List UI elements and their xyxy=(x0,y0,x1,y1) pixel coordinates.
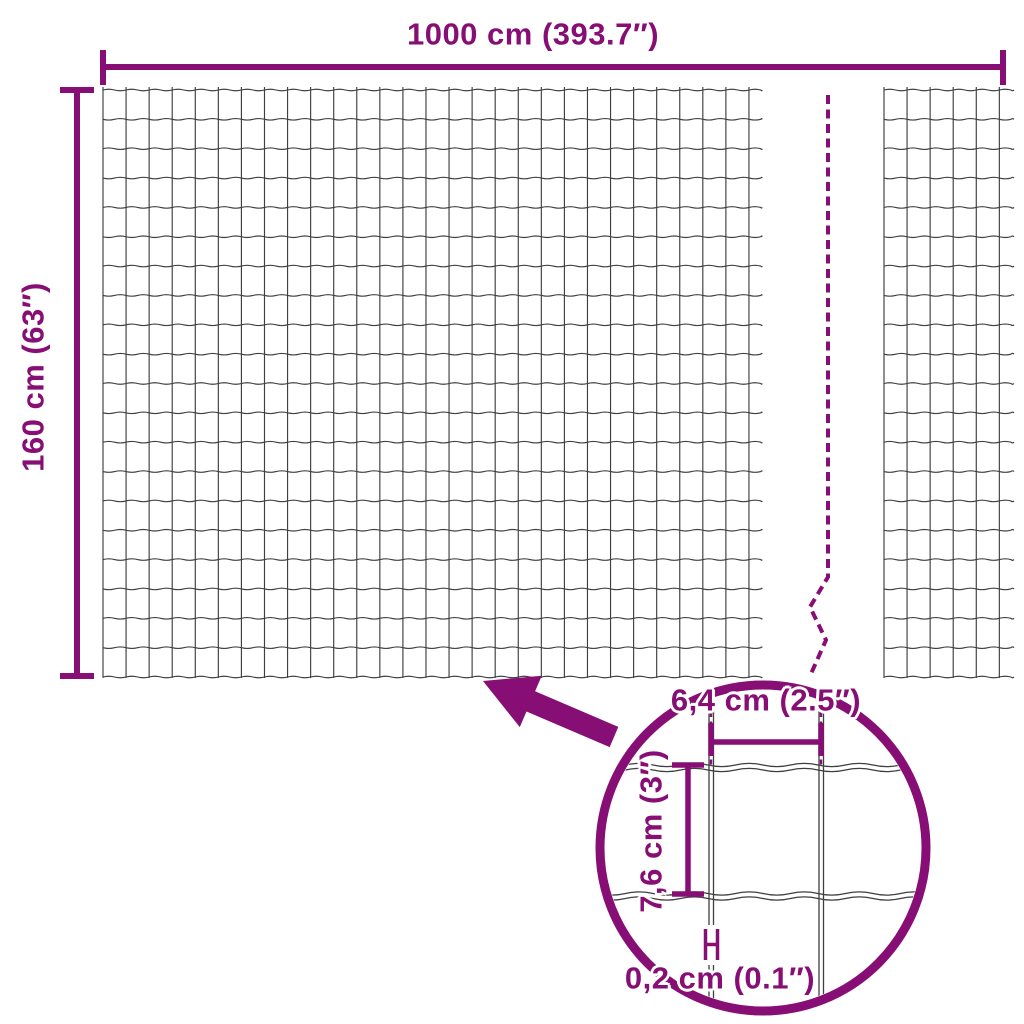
mesh-panel-left xyxy=(103,87,762,678)
product-dimension-diagram: 1000 cm (393.7″) 160 cm (63″) 6,4 cm (2.… xyxy=(0,0,1024,1024)
mesh-horizontal-wires xyxy=(884,89,1014,678)
mesh-horizontal-wires xyxy=(103,89,762,678)
total-width-label: 1000 cm (393.7″) xyxy=(407,19,659,50)
mesh-opening-height-label: 7,6 cm (3″) xyxy=(636,749,667,912)
total-height-label: 160 cm (63″) xyxy=(18,282,49,472)
width-dimension xyxy=(103,50,1003,85)
wire-thickness-label: 0,2 cm (0.1″) xyxy=(625,963,815,994)
wire-thickness-marker xyxy=(701,925,722,965)
mesh-opening-width-label: 6,4 cm (2.5″) xyxy=(671,685,861,716)
height-dimension xyxy=(60,90,94,676)
mesh-panel-right xyxy=(884,87,1014,678)
zoom-arrow-icon xyxy=(483,676,618,747)
break-line xyxy=(810,95,828,676)
diagram-svg xyxy=(0,0,1024,1024)
